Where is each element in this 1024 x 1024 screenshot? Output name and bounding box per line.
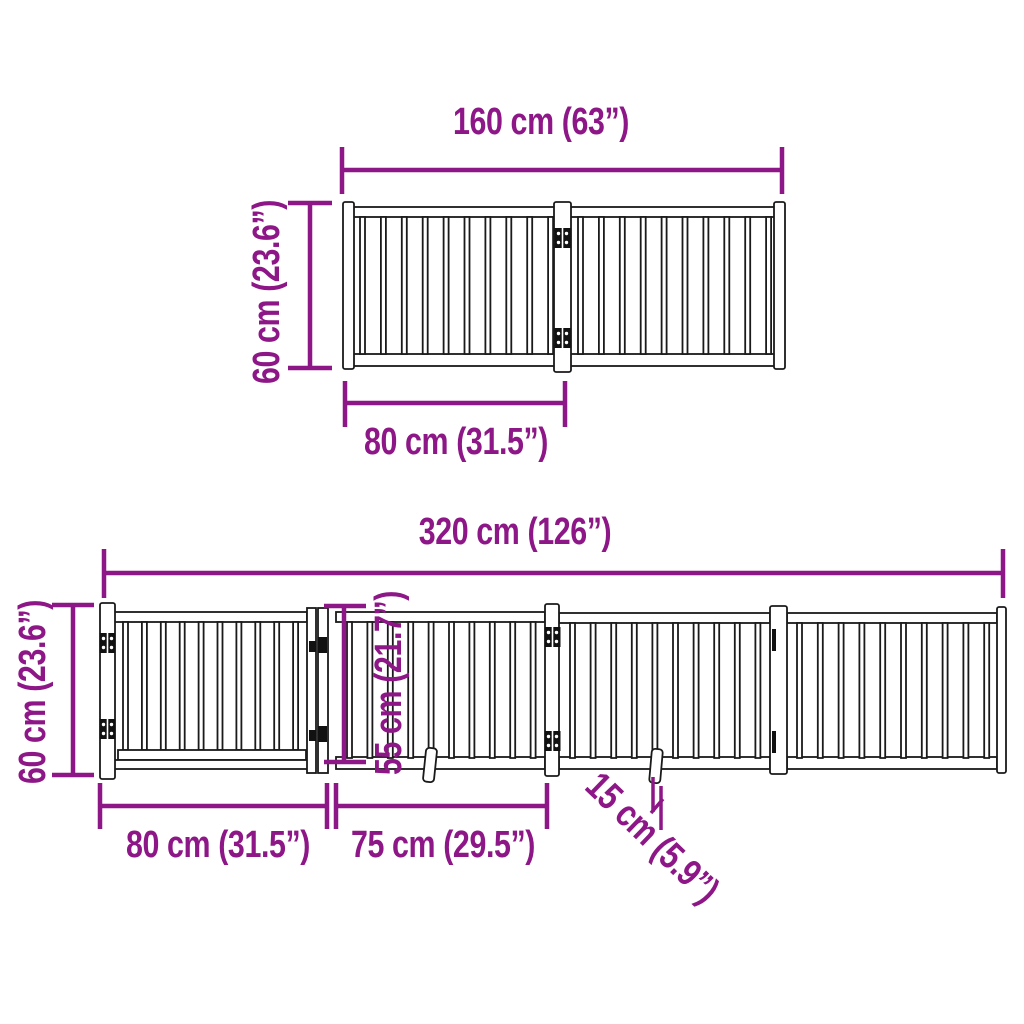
label-section2-width: 75 cm (29.5”) — [351, 826, 535, 864]
door-jamb-post — [307, 608, 316, 773]
label-door-height: 55 cm (21.7”) — [370, 591, 408, 775]
end-post-left — [343, 202, 354, 369]
hinge-icon — [555, 228, 571, 248]
label-top-panel-width: 80 cm (31.5”) — [364, 423, 548, 461]
top-gate-drawing — [343, 202, 785, 372]
hinge-icon — [555, 328, 571, 348]
slats-section-4 — [797, 623, 989, 758]
foot-support — [649, 749, 663, 784]
end-cap-right — [997, 607, 1006, 773]
edge-hinge-icon — [772, 629, 776, 651]
door-threshold-rail — [113, 760, 315, 769]
slats-section-3 — [570, 623, 760, 758]
door-jamb-post — [318, 608, 328, 773]
rail — [787, 613, 997, 623]
hinge-icon — [100, 719, 116, 739]
wall-post-left — [100, 603, 115, 779]
product-dimension-diagram: 160 cm (63”) 60 cm (23.6”) 80 cm (31.5”)… — [0, 0, 1024, 1024]
label-section1-width: 80 cm (31.5”) — [126, 826, 310, 864]
slats-panel-2 — [578, 217, 771, 354]
label-top-total-width: 160 cm (63”) — [453, 103, 629, 141]
slats-panel-1 — [360, 217, 553, 354]
end-post-right — [774, 202, 785, 369]
slats-door — [123, 622, 298, 750]
edge-hinge-icon — [772, 731, 776, 753]
label-bottom-height: 60 cm (23.6”) — [14, 600, 52, 784]
hinge-icon — [545, 731, 561, 751]
foot-support — [423, 748, 437, 783]
door-bottom-rail — [118, 750, 306, 760]
hinge-icon — [100, 633, 116, 653]
label-top-height: 60 cm (23.6”) — [248, 200, 286, 384]
hinge-icon — [545, 627, 561, 647]
rail — [559, 613, 770, 623]
bottom-gate-drawing — [100, 603, 1007, 783]
label-bottom-total-width: 320 cm (126”) — [419, 513, 612, 551]
door-top-rail — [113, 612, 307, 622]
